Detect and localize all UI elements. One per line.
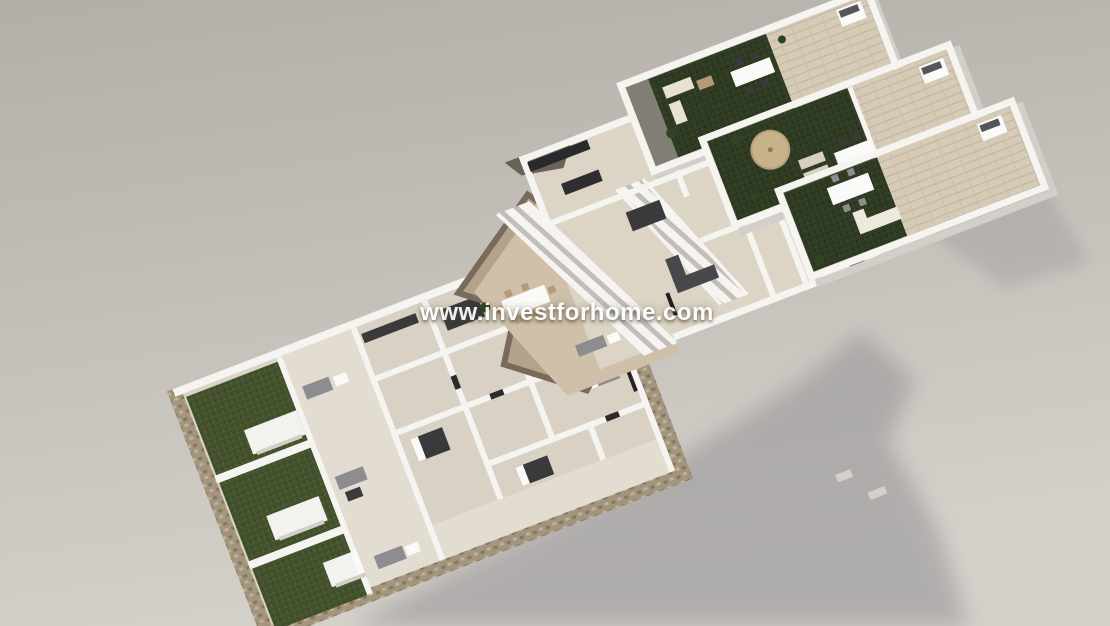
render-image: www.investforhome.com <box>0 0 1110 626</box>
floorplan-3d-render <box>0 0 1110 626</box>
